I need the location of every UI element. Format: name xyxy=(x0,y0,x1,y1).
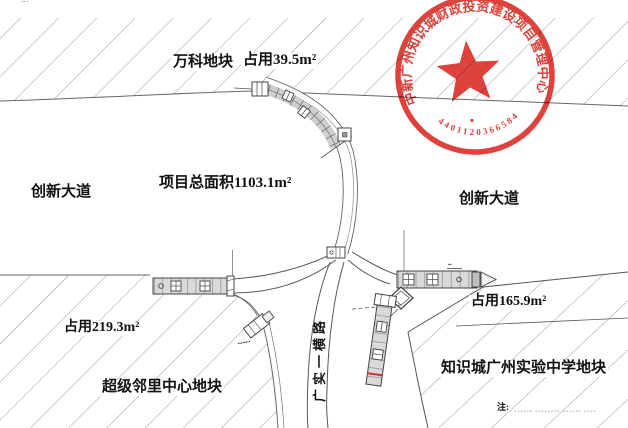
site-plan-page: 中新广州知识城财政投资建设项目管理中心 4401120366584 ▪▪▪▪▪▪… xyxy=(0,0,628,428)
right-road-band xyxy=(397,230,496,288)
note-faint-text: ▪▪▪▪▪▪ ▪▪▪▪▪▪▪▪ ▪▪▪▪▪▪ ▪▪▪▪ xyxy=(512,409,599,415)
label-vertical-road: 广实一横路 xyxy=(309,317,328,402)
note-prefix: 注: xyxy=(495,403,511,412)
band-tiny-label: ▪▪ xyxy=(448,263,452,268)
label-neighborhood-parcel: 超级邻里中心地块 xyxy=(100,380,224,396)
corner-artifact: ▪▪ ▪ xyxy=(20,0,31,5)
label-right-occupied: 占用165.9m² xyxy=(469,295,548,310)
label-left-occupied: 占用219.3m² xyxy=(62,321,141,336)
label-innovation-ave-left: 创新大道 xyxy=(29,185,93,201)
left-road-band xyxy=(153,250,234,296)
label-project-total-area: 项目总面积1103.1m² xyxy=(157,176,293,192)
left-parcel-hatch xyxy=(0,275,278,428)
seal-serial-number: 4401120366584 xyxy=(436,109,523,141)
label-vanke-occupied: 占用39.5m² xyxy=(241,53,318,69)
main-curved-road xyxy=(234,82,354,252)
slanted-road-band xyxy=(352,294,402,387)
label-vanke-parcel: 万科地块 xyxy=(171,55,235,71)
label-school-parcel: 知识城广州实验中学地块 xyxy=(439,361,608,377)
label-innovation-ave-right: 创新大道 xyxy=(457,192,521,208)
